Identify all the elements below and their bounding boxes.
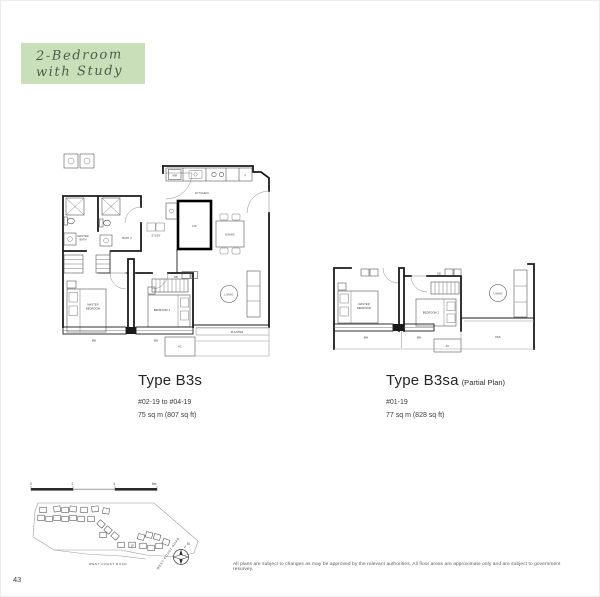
b3s-living: LIVING xyxy=(221,271,261,317)
compass-label: N xyxy=(187,542,190,546)
bw-label: BW xyxy=(417,337,422,340)
b3s-ac-ledge: AC xyxy=(165,337,269,356)
ac-label: AC xyxy=(446,345,450,348)
kitchen-label: KITCHEN xyxy=(195,191,209,195)
category-line-2: with Study xyxy=(36,62,145,80)
dining-label: DINING xyxy=(225,234,235,237)
bw-label: BW xyxy=(364,337,369,340)
study-label: STUDY xyxy=(151,235,160,238)
scale-tick: 2 xyxy=(72,482,74,486)
svg-text:BEDROOM: BEDROOM xyxy=(86,307,100,310)
b3sa-bedroom2: BEDROOM 2 xyxy=(416,299,456,326)
bedroom2-label: BEDROOM 2 xyxy=(154,309,171,312)
scale-tick: 6m xyxy=(152,482,157,486)
db-label: DB xyxy=(174,276,178,279)
planter-label: PLANTER xyxy=(231,331,244,334)
vanity-icon xyxy=(100,235,112,246)
db-label: DB xyxy=(437,273,441,276)
page-number: 43 xyxy=(13,575,21,584)
scale-tick: 0 xyxy=(30,482,32,486)
b3sa-service-risers xyxy=(361,269,378,276)
b3s-service-risers xyxy=(64,154,94,168)
console-icon xyxy=(247,271,260,317)
bw-label: BW xyxy=(154,340,159,343)
sink-icon xyxy=(189,171,202,179)
b3sa-title-suffix: (Partial Plan) xyxy=(462,378,505,387)
b3s-units: #02-19 to #04-19 xyxy=(138,399,202,406)
side-table-icon xyxy=(148,287,155,294)
bath2-label: BATH 2 xyxy=(122,237,132,240)
b3s-master-bedroom: MASTER BEDROOM xyxy=(67,281,106,332)
b3sa-ac-ledge: AC xyxy=(434,339,461,352)
b3sa-master-bedroom: MASTER BEDROOM xyxy=(338,283,378,323)
b3sa-living: LIVING xyxy=(461,270,534,321)
side-table-icon xyxy=(67,281,76,288)
svg-text:BATH: BATH xyxy=(79,239,86,242)
site-block-highlighted: 19 xyxy=(129,542,136,548)
b3sa-doors xyxy=(383,268,427,292)
toilet-icon xyxy=(64,217,74,225)
hs-label: HS xyxy=(192,224,196,228)
b3s-area: 75 sq m (807 sq ft) xyxy=(138,412,202,419)
b3s-title: Type B3s xyxy=(138,372,202,389)
bedroom2-label: BEDROOM 2 xyxy=(423,312,440,315)
toilet-icon xyxy=(100,219,111,227)
master-bedroom-label: MASTER xyxy=(87,304,98,307)
bed-icon xyxy=(67,289,106,332)
highlighted-stack-label: 19 xyxy=(130,543,134,547)
b3s-household-shelter: HS xyxy=(178,201,211,249)
stove-icon xyxy=(212,172,216,176)
master-bath-label: MASTER xyxy=(77,235,88,238)
floorplan-b3s: WM F KITCHEN HS DINING STUDY xyxy=(56,151,276,366)
wm-label: WM xyxy=(172,174,177,177)
b3s-planter: PLANTER xyxy=(193,325,269,341)
svg-text:BEDROOM: BEDROOM xyxy=(357,307,371,310)
bw-label: BW xyxy=(92,340,97,343)
b3sa-title: Type B3sa xyxy=(386,372,459,389)
brochure-page: 2-Bedroom with Study WM xyxy=(0,0,600,597)
b3s-study-area: STUDY xyxy=(147,223,165,238)
pes-label: PES xyxy=(495,336,501,339)
b3s-bedroom2: BEDROOM 2 xyxy=(148,287,190,327)
road-label-bottom: WEST COAST ROAD xyxy=(89,562,128,566)
site-map: 0 2 4 6m xyxy=(26,481,216,586)
side-table-icon xyxy=(338,283,346,290)
b3sa-caption: Type B3sa(Partial Plan) #01-19 77 sq m (… xyxy=(386,372,505,419)
b3sa-wardrobe xyxy=(431,282,459,294)
b3sa-db: DB xyxy=(437,269,461,276)
b3sa-units: #01-19 xyxy=(386,399,505,406)
scale-bar: 0 2 4 6m xyxy=(30,482,157,491)
fridge-label: F xyxy=(245,174,247,177)
b3s-caption: Type B3s #02-19 to #04-19 75 sq m (807 s… xyxy=(138,372,202,419)
b3sa-area: 77 sq m (828 sq ft) xyxy=(386,412,505,419)
disclaimer-text: All plans are subject to changes as may … xyxy=(233,562,578,572)
site-blocks: 19 xyxy=(38,506,170,551)
category-line-1: 2-Bedroom xyxy=(36,46,145,64)
ac-label: AC xyxy=(178,346,182,349)
scale-tick: 4 xyxy=(114,482,116,486)
vanity-icon xyxy=(64,233,76,245)
living-label: LIVING xyxy=(224,293,233,296)
b3sa-bay-windows: BW BW xyxy=(334,324,434,340)
master-bedroom-label: MASTER xyxy=(358,303,369,306)
living-label: LIVING xyxy=(493,292,502,295)
floorplan-b3sa: DB MASTER BEDROOM BEDROOM 2 xyxy=(331,256,546,366)
b3s-dining-area: DINING xyxy=(216,214,244,254)
console-icon xyxy=(514,270,527,317)
category-badge: 2-Bedroom with Study xyxy=(21,43,145,84)
